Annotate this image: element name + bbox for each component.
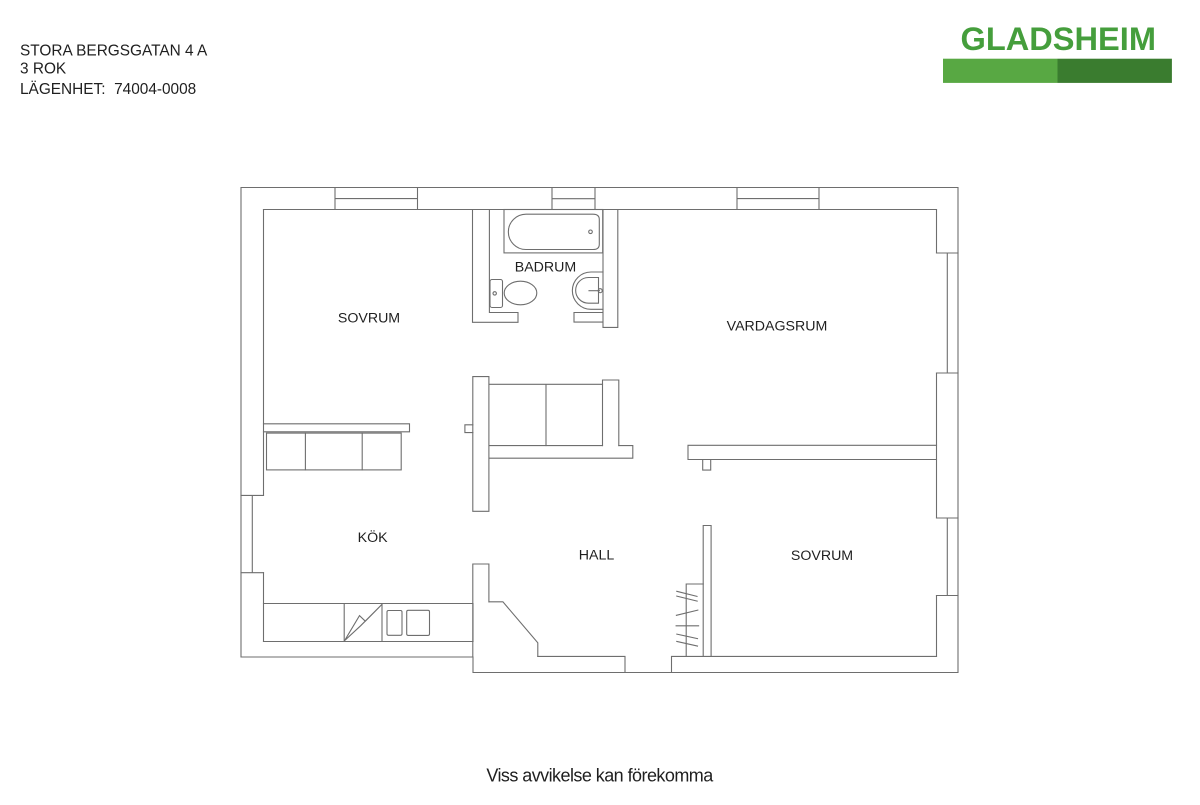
svg-text:Viss avvikelse kan förekomma: Viss avvikelse kan förekomma — [486, 766, 714, 786]
svg-text:SOVRUM: SOVRUM — [791, 548, 853, 564]
svg-text:STORA BERGSGATAN 4 A: STORA BERGSGATAN 4 A — [20, 43, 208, 60]
svg-text:BADRUM: BADRUM — [515, 260, 576, 276]
svg-text:KÖK: KÖK — [358, 528, 388, 546]
svg-text:SOVRUM: SOVRUM — [338, 311, 400, 327]
svg-text:VARDAGSRUM: VARDAGSRUM — [727, 319, 828, 335]
svg-text:HALL: HALL — [579, 548, 615, 564]
svg-text:3 ROK: 3 ROK — [20, 60, 67, 77]
svg-text:LÄGENHET: 74004-0008: LÄGENHET: 74004-0008 — [20, 81, 196, 98]
svg-text:GLADSHEIM: GLADSHEIM — [961, 20, 1156, 57]
